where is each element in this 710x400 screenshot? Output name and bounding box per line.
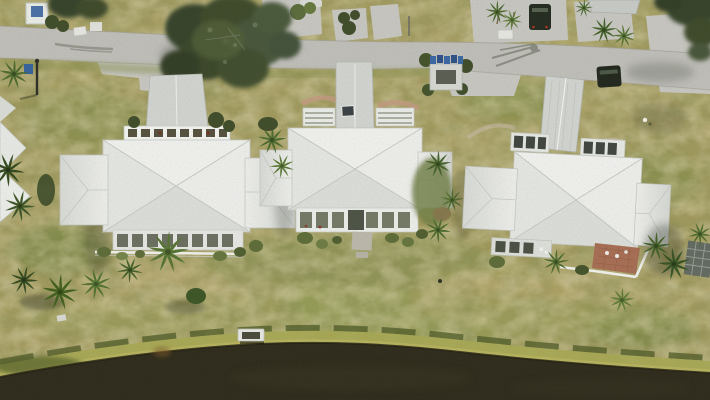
aerial-photo: Top-down aerial drone photo of three coa… <box>0 0 710 400</box>
photo-grain <box>0 0 710 400</box>
aerial-photo-canvas <box>0 0 710 400</box>
